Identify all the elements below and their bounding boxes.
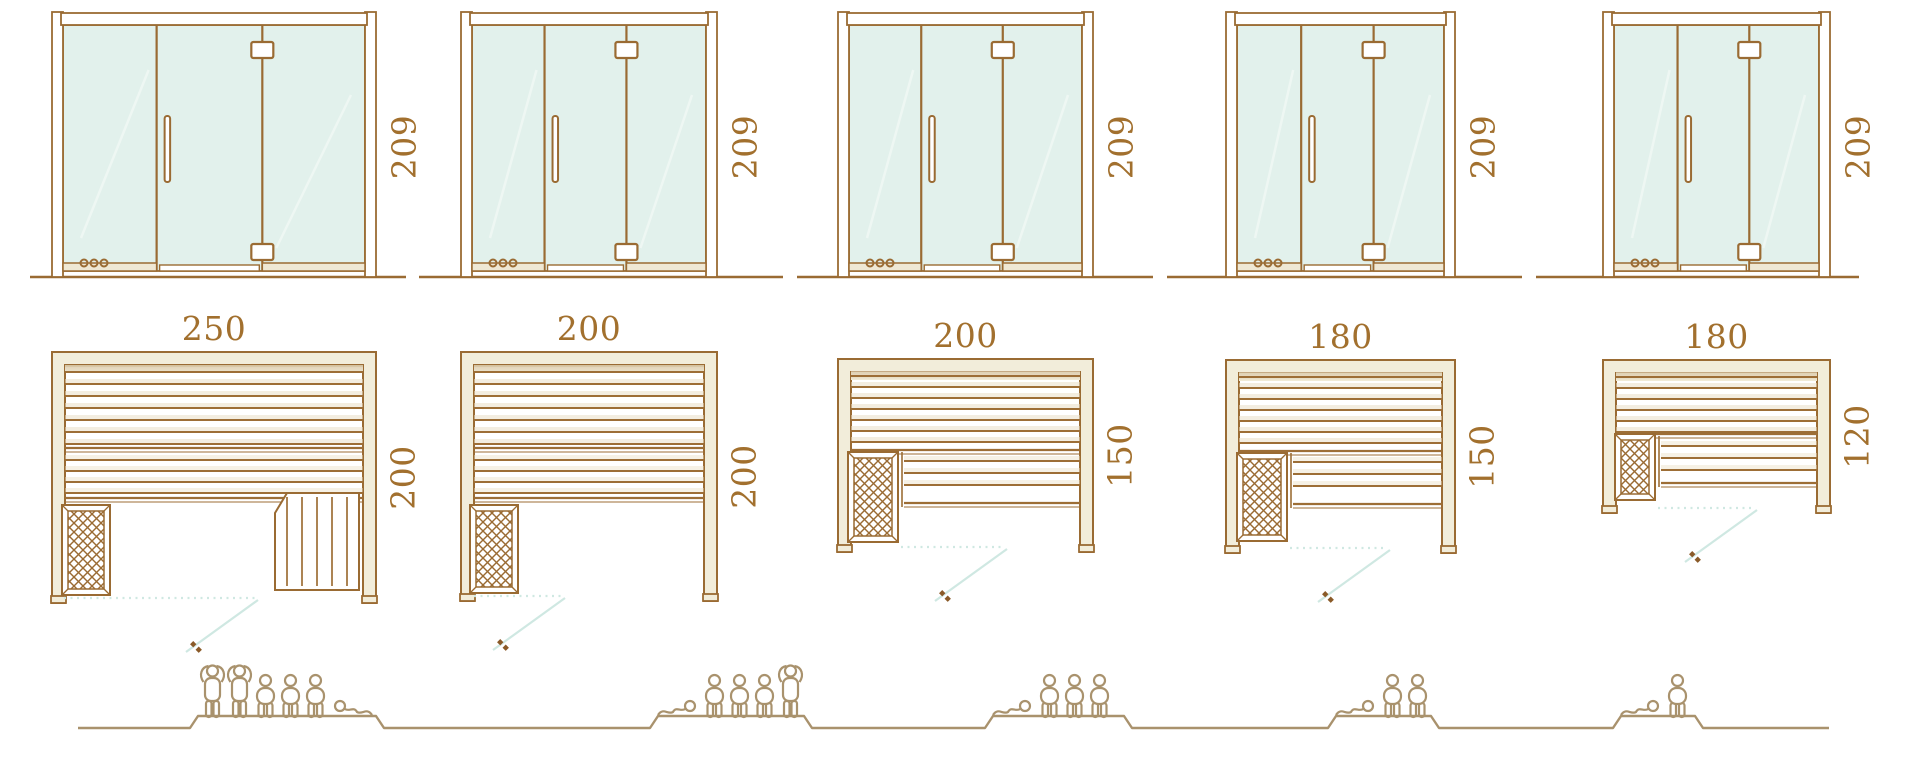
heater-lattice xyxy=(400,511,656,587)
door-hinge-icon xyxy=(992,244,1014,260)
door-handle-icon xyxy=(929,116,935,182)
lower-bench xyxy=(902,452,1080,507)
heater-lattice xyxy=(0,511,257,589)
door-hinge-icon xyxy=(1738,42,1760,58)
door-open-line xyxy=(186,600,258,652)
frame-top-beam xyxy=(470,13,708,25)
capacity-group xyxy=(1621,675,1686,717)
person-sitting-icon xyxy=(282,675,299,717)
door-swing xyxy=(64,598,258,653)
wall-end-cap xyxy=(1441,546,1456,553)
person-sitting-icon xyxy=(706,675,723,717)
bottom-rail-left xyxy=(849,263,921,271)
floor-plan: 180120 xyxy=(1567,317,1877,563)
person-sitting-icon xyxy=(1384,675,1401,717)
frame-post-right xyxy=(706,12,717,277)
plan-depth-label: 200 xyxy=(725,444,764,509)
bottom-rail-right xyxy=(1749,263,1819,271)
sauna-model-5: 209180120 xyxy=(1536,12,1878,717)
floor-plan: 200150 xyxy=(776,316,1140,602)
sauna-model-4: 209180150 xyxy=(1167,12,1522,717)
door-swing xyxy=(1290,548,1390,603)
plan-depth-label: 120 xyxy=(1838,404,1877,469)
door-hinge-icon xyxy=(251,244,273,260)
capacity-group xyxy=(658,666,802,718)
elevation-height-label: 209 xyxy=(385,115,424,180)
upper-bench xyxy=(65,367,363,452)
bottom-rail-right xyxy=(626,263,706,271)
frame-post-right xyxy=(1082,12,1093,277)
door-handle-dot xyxy=(1328,597,1334,603)
plan-width-label: 200 xyxy=(557,309,622,348)
person-sitting-icon xyxy=(307,675,324,717)
frame-post-left xyxy=(838,12,849,277)
door-elevation: 209 xyxy=(797,12,1153,277)
upper-bench xyxy=(474,367,704,452)
door-elevation: 209 xyxy=(419,12,783,277)
plan-depth-label: 150 xyxy=(1101,423,1140,488)
door-handle-dot xyxy=(945,596,951,602)
door-handle-dot xyxy=(1695,557,1701,563)
sauna-model-1: 209250200 xyxy=(0,12,424,717)
door-hinge-icon xyxy=(1738,244,1760,260)
person-sitting-icon xyxy=(1066,675,1083,717)
bottom-rail-right xyxy=(262,263,365,271)
door-hinge-icon xyxy=(1363,244,1385,260)
elevation-height-label: 209 xyxy=(1839,115,1878,180)
heater-icon xyxy=(400,505,656,593)
person-lying-icon xyxy=(1336,701,1373,715)
door-hinge-icon xyxy=(251,42,273,58)
person-lying-icon xyxy=(1621,701,1658,715)
door-bottom-rail xyxy=(924,265,1000,271)
frame-post-left xyxy=(1603,12,1614,277)
capacity-baseline xyxy=(78,716,1829,728)
door-open-line xyxy=(935,549,1007,601)
door-hinge-icon xyxy=(615,42,637,58)
glass-front xyxy=(1614,25,1819,271)
door-bottom-rail xyxy=(548,265,624,271)
elevation-height-label: 209 xyxy=(1102,115,1141,180)
capacity-group xyxy=(201,666,372,718)
glass-front xyxy=(1237,25,1444,271)
person-standing-icon xyxy=(228,666,251,718)
upper-bench xyxy=(1239,372,1442,455)
frame-top-beam xyxy=(1235,13,1446,25)
door-swing xyxy=(1658,508,1757,563)
door-swing xyxy=(474,596,565,651)
capacity-group xyxy=(1336,675,1426,717)
door-bottom-rail xyxy=(160,265,260,271)
elevation-height-label: 209 xyxy=(726,115,765,180)
door-handle-icon xyxy=(165,116,171,182)
wall-end-cap xyxy=(837,545,852,552)
person-lying-icon xyxy=(993,701,1030,715)
sauna-model-2: 209200200 xyxy=(400,12,802,717)
lower-bench xyxy=(1291,453,1442,508)
door-handle-dot xyxy=(503,645,509,651)
door-handle-icon xyxy=(553,116,559,182)
door-elevation: 209 xyxy=(1536,12,1878,277)
door-handle-icon xyxy=(1309,116,1315,182)
wall-end-cap xyxy=(1079,545,1094,552)
person-sitting-icon xyxy=(257,675,274,717)
elevation-height-label: 209 xyxy=(1464,115,1503,180)
frame-post-left xyxy=(52,12,63,277)
heater-icon xyxy=(776,452,1043,542)
person-sitting-icon xyxy=(1409,675,1426,717)
floor-plan: 180150 xyxy=(1167,317,1502,603)
plan-width-label: 180 xyxy=(1684,317,1749,356)
wall-end-cap xyxy=(362,596,377,603)
heater-icon xyxy=(1167,453,1432,541)
person-sitting-icon xyxy=(1041,675,1058,717)
lower-bench xyxy=(474,455,704,502)
door-hinge-icon xyxy=(992,42,1014,58)
door-handle-dot xyxy=(196,647,202,653)
bottom-rail-right xyxy=(1374,263,1444,271)
door-swing xyxy=(901,547,1007,602)
person-sitting-icon xyxy=(756,675,773,717)
sauna-model-3: 209200150 xyxy=(776,12,1153,717)
plan-depth-label: 200 xyxy=(384,445,423,510)
heater-icon xyxy=(0,505,257,595)
wall-end-cap xyxy=(1225,546,1240,553)
door-elevation: 209 xyxy=(1167,12,1522,277)
capacity-group xyxy=(993,675,1108,717)
door-handle-icon xyxy=(1686,116,1692,182)
door-elevation: 209 xyxy=(30,12,424,277)
plan-depth-label: 150 xyxy=(1463,424,1502,489)
glass-front xyxy=(849,25,1082,271)
glass-front xyxy=(63,25,365,271)
frame-top-beam xyxy=(61,13,367,25)
plan-width-label: 250 xyxy=(182,309,247,348)
door-bottom-rail xyxy=(1681,265,1747,271)
frame-post-right xyxy=(1444,12,1455,277)
person-sitting-icon xyxy=(731,675,748,717)
wall-end-cap xyxy=(703,594,718,601)
door-open-line xyxy=(493,598,565,650)
door-open-line xyxy=(1685,510,1757,562)
bottom-rail-left xyxy=(472,263,545,271)
floor-plan: 250200 xyxy=(0,309,423,653)
floor-plan: 200200 xyxy=(400,309,764,651)
person-sitting-icon xyxy=(1091,675,1108,717)
plan-width-label: 200 xyxy=(933,316,998,355)
frame-post-right xyxy=(365,12,376,277)
frame-post-left xyxy=(1226,12,1237,277)
door-hinge-icon xyxy=(615,244,637,260)
door-bottom-rail xyxy=(1304,265,1370,271)
person-lying-icon xyxy=(658,701,695,715)
wall-end-cap xyxy=(51,596,66,603)
sauna-size-diagram: 2092502002092002002092001502091801502091… xyxy=(0,0,1920,764)
person-lying-icon xyxy=(335,701,372,715)
wall-end-cap xyxy=(460,594,475,601)
upper-bench xyxy=(851,371,1080,454)
sauna-diagram-svg: 2092502002092002002092001502091801502091… xyxy=(0,0,1920,764)
bottom-rail-left xyxy=(63,263,157,271)
glass-front xyxy=(472,25,706,271)
person-sitting-icon xyxy=(1669,675,1686,717)
frame-top-beam xyxy=(847,13,1084,25)
bottom-rail-right xyxy=(1003,263,1082,271)
lower-bench xyxy=(1659,436,1817,487)
side-bench xyxy=(275,493,359,590)
frame-post-left xyxy=(461,12,472,277)
frame-post-right xyxy=(1819,12,1830,277)
door-open-line xyxy=(1318,550,1390,602)
person-standing-icon xyxy=(201,666,224,718)
frame-top-beam xyxy=(1612,13,1821,25)
door-hinge-icon xyxy=(1363,42,1385,58)
upper-bench xyxy=(1616,372,1817,438)
person-standing-icon xyxy=(779,666,802,718)
wall-end-cap xyxy=(1816,506,1831,513)
wall-end-cap xyxy=(1602,506,1617,513)
plan-width-label: 180 xyxy=(1308,317,1373,356)
